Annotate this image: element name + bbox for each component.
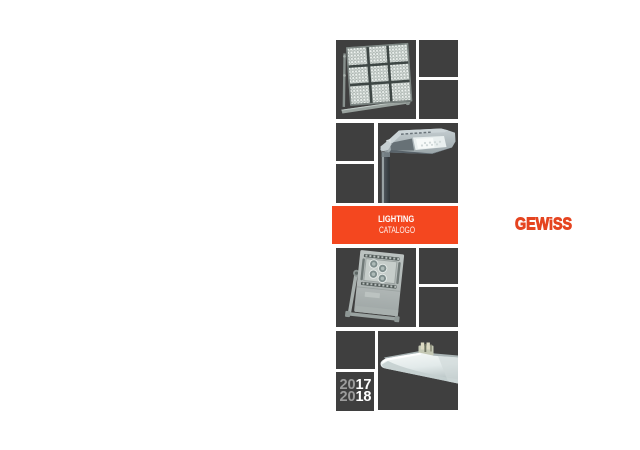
svg-text:GEWiSS: GEWiSS [515,217,572,231]
